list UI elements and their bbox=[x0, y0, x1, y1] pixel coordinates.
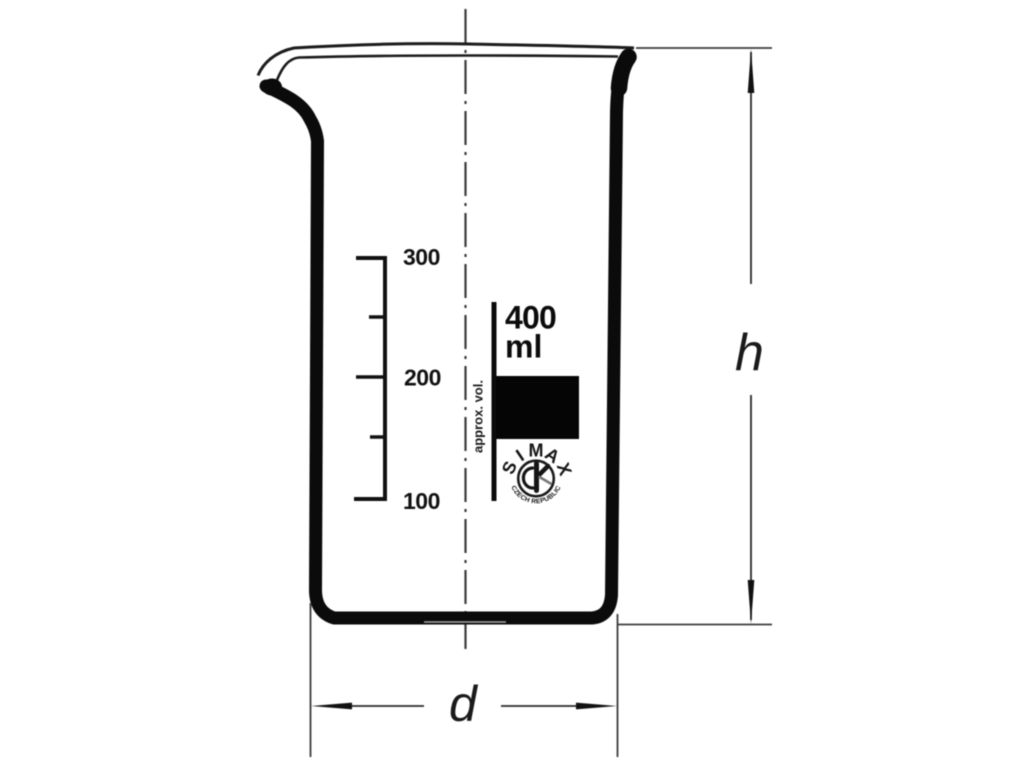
svg-text:ml: ml bbox=[505, 329, 542, 365]
svg-text:M: M bbox=[529, 441, 544, 461]
svg-text:d: d bbox=[449, 676, 479, 732]
svg-text:100: 100 bbox=[403, 488, 440, 514]
svg-text:approx. vol.: approx. vol. bbox=[471, 380, 486, 453]
svg-text:h: h bbox=[735, 324, 764, 382]
svg-text:200: 200 bbox=[404, 365, 441, 391]
svg-text:300: 300 bbox=[403, 244, 440, 270]
